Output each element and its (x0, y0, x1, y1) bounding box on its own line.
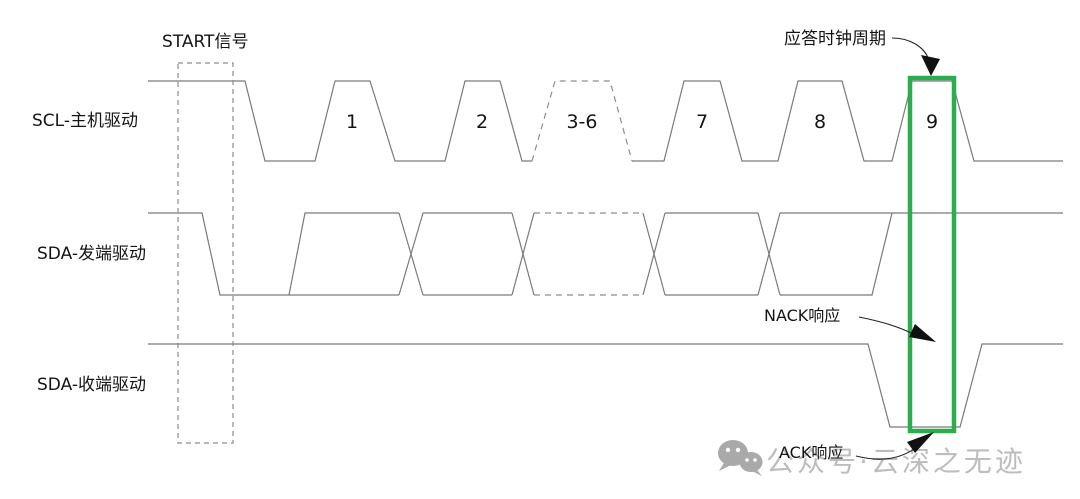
scl-waveform-segment (148, 81, 532, 161)
row-label-sda-transmitter: SDA-发端驱动 (37, 244, 146, 264)
ack-clock-arrow-head (921, 55, 940, 76)
ack-clock-period-box (910, 78, 954, 431)
clock-number-8: 8 (814, 111, 826, 133)
clock-number-2: 2 (476, 111, 488, 133)
sda_tx-waveform-segment (643, 213, 665, 295)
sda_tx-waveform-segment (512, 213, 534, 295)
sda_tx-waveform-segment (399, 213, 423, 295)
sda_tx-waveform-segment (148, 213, 399, 295)
scl-waveform-segment (532, 81, 632, 161)
clock-number-1: 1 (346, 111, 358, 133)
nack-response-label: NACK响应 (764, 306, 840, 325)
sda_tx-waveform-segment (758, 213, 780, 295)
start-condition-box (178, 63, 233, 443)
sda_rx-waveform-segment (148, 344, 1063, 427)
sda_tx-waveform-segment (512, 213, 534, 295)
clock-number-3-6: 3-6 (566, 111, 597, 133)
nack-arrow-head (909, 324, 936, 342)
clock-number-9: 9 (926, 111, 938, 133)
sda_tx-waveform-segment (399, 213, 423, 295)
i2c-timing-diagram: 公众号·云深之无迹 123-6789 SCL-主机驱动 SDA-发端驱动 SDA… (0, 0, 1080, 499)
ack-clock-arrow-curve (892, 38, 929, 60)
row-label-sda-receiver: SDA-收端驱动 (37, 375, 146, 395)
start-signal-label: START信号 (162, 32, 248, 52)
row-label-scl: SCL-主机驱动 (32, 111, 138, 131)
clock-number-7: 7 (696, 111, 708, 133)
sda_tx-waveform-segment (289, 213, 399, 295)
sda_tx-waveform-segment (758, 213, 780, 295)
ack-response-label: ACK响应 (779, 443, 843, 462)
sda_tx-waveform-segment (643, 213, 665, 295)
sda_tx-waveform-segment (780, 213, 892, 295)
waveform-canvas: 123-6789 (0, 0, 1080, 499)
ack-clock-period-label: 应答时钟周期 (784, 29, 886, 49)
wechat-icon (714, 438, 766, 478)
nack-arrow-curve (859, 317, 913, 334)
scl-waveform-segment (632, 81, 1063, 161)
